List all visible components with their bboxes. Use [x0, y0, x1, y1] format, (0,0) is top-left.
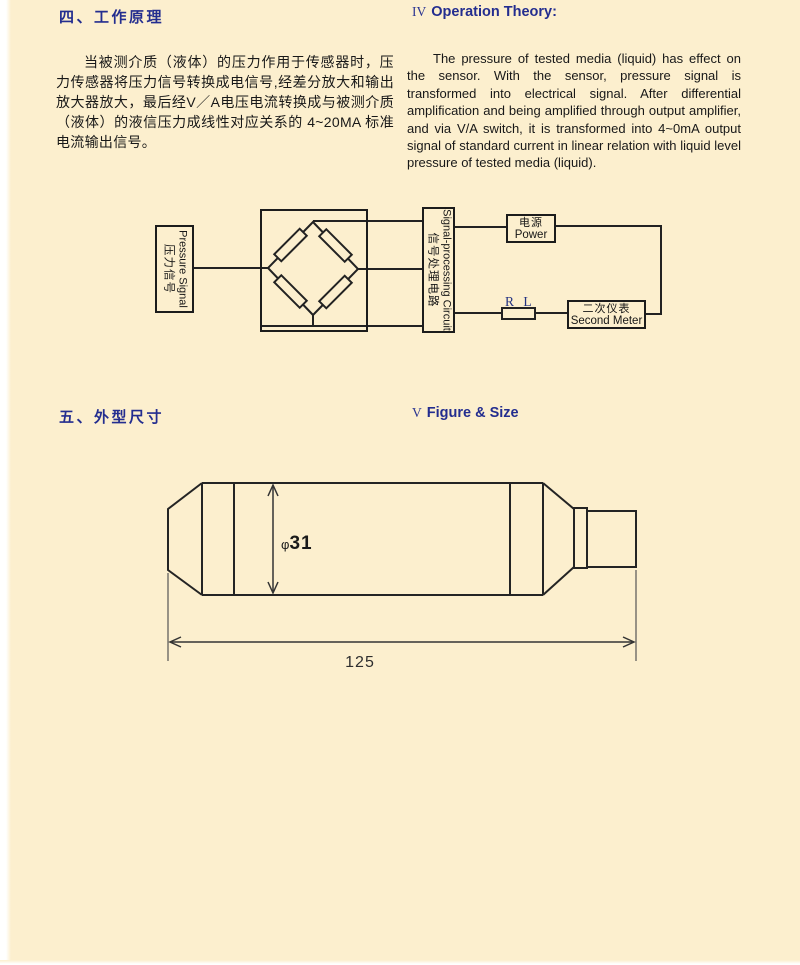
signal-processing-box: Signal-processing Circuit 信号处理电路: [422, 207, 455, 333]
power-label-zh: 电源: [519, 217, 543, 229]
bridge-box: [260, 209, 368, 332]
section5-heading-zh: 五、外型尺寸: [59, 406, 164, 427]
signal-processing-label-zh: 信号处理电路: [424, 209, 439, 331]
pressure-signal-label-en: Pressure Signal: [175, 227, 189, 311]
second-meter-label-en: Second Meter: [571, 315, 643, 327]
section4-numeral: IV: [412, 4, 426, 19]
diameter-dimension-arrows: [268, 485, 278, 593]
section5-heading-en-text: Figure & Size: [427, 405, 519, 421]
length-dimension-label: 125: [330, 654, 390, 672]
theory-paragraph-zh: 当被测介质（液体）的压力作用于传感器时，压力传感器将压力信号转换成电信号,经差分…: [56, 52, 394, 152]
power-box: 电源 Power: [506, 214, 556, 243]
pressure-signal-label: Pressure Signal 压力信号: [160, 227, 189, 311]
section5-heading-en: VFigure & Size: [412, 405, 519, 421]
section4-heading-en-text: Operation Theory:: [431, 4, 557, 20]
document-page: { "colors": { "background": "#fcefce", "…: [0, 0, 800, 965]
power-box-label: 电源 Power: [508, 216, 554, 241]
power-label-en: Power: [515, 229, 548, 241]
diameter-dimension-label: φ31: [281, 533, 313, 555]
theory-paragraph-en: The pressure of tested media (liquid) ha…: [407, 50, 741, 172]
page-left-margin: [0, 0, 11, 965]
sensor-body-outline: [168, 483, 574, 595]
section4-heading-en: IVOperation Theory:: [412, 4, 557, 20]
length-extension-lines: [168, 570, 636, 661]
second-meter-box: 二次仪表 Second Meter: [567, 300, 646, 329]
pressure-signal-label-zh: 压力信号: [160, 227, 175, 311]
section5-numeral: V: [412, 405, 422, 420]
load-resistor-label: R L: [505, 294, 535, 310]
diameter-value: 31: [289, 533, 312, 554]
length-dimension-arrows: [170, 637, 634, 647]
sensor-connector: [587, 511, 636, 567]
signal-processing-label-en: Signal-processing Circuit: [439, 209, 453, 331]
section4-heading-zh: 四、工作原理: [59, 6, 164, 27]
signal-processing-label: Signal-processing Circuit 信号处理电路: [424, 209, 453, 331]
page-bottom-margin: [0, 960, 800, 965]
pressure-signal-box: Pressure Signal 压力信号: [155, 225, 194, 313]
second-meter-label-zh: 二次仪表: [583, 303, 631, 315]
sensor-collar: [574, 508, 587, 568]
second-meter-label: 二次仪表 Second Meter: [569, 302, 644, 327]
